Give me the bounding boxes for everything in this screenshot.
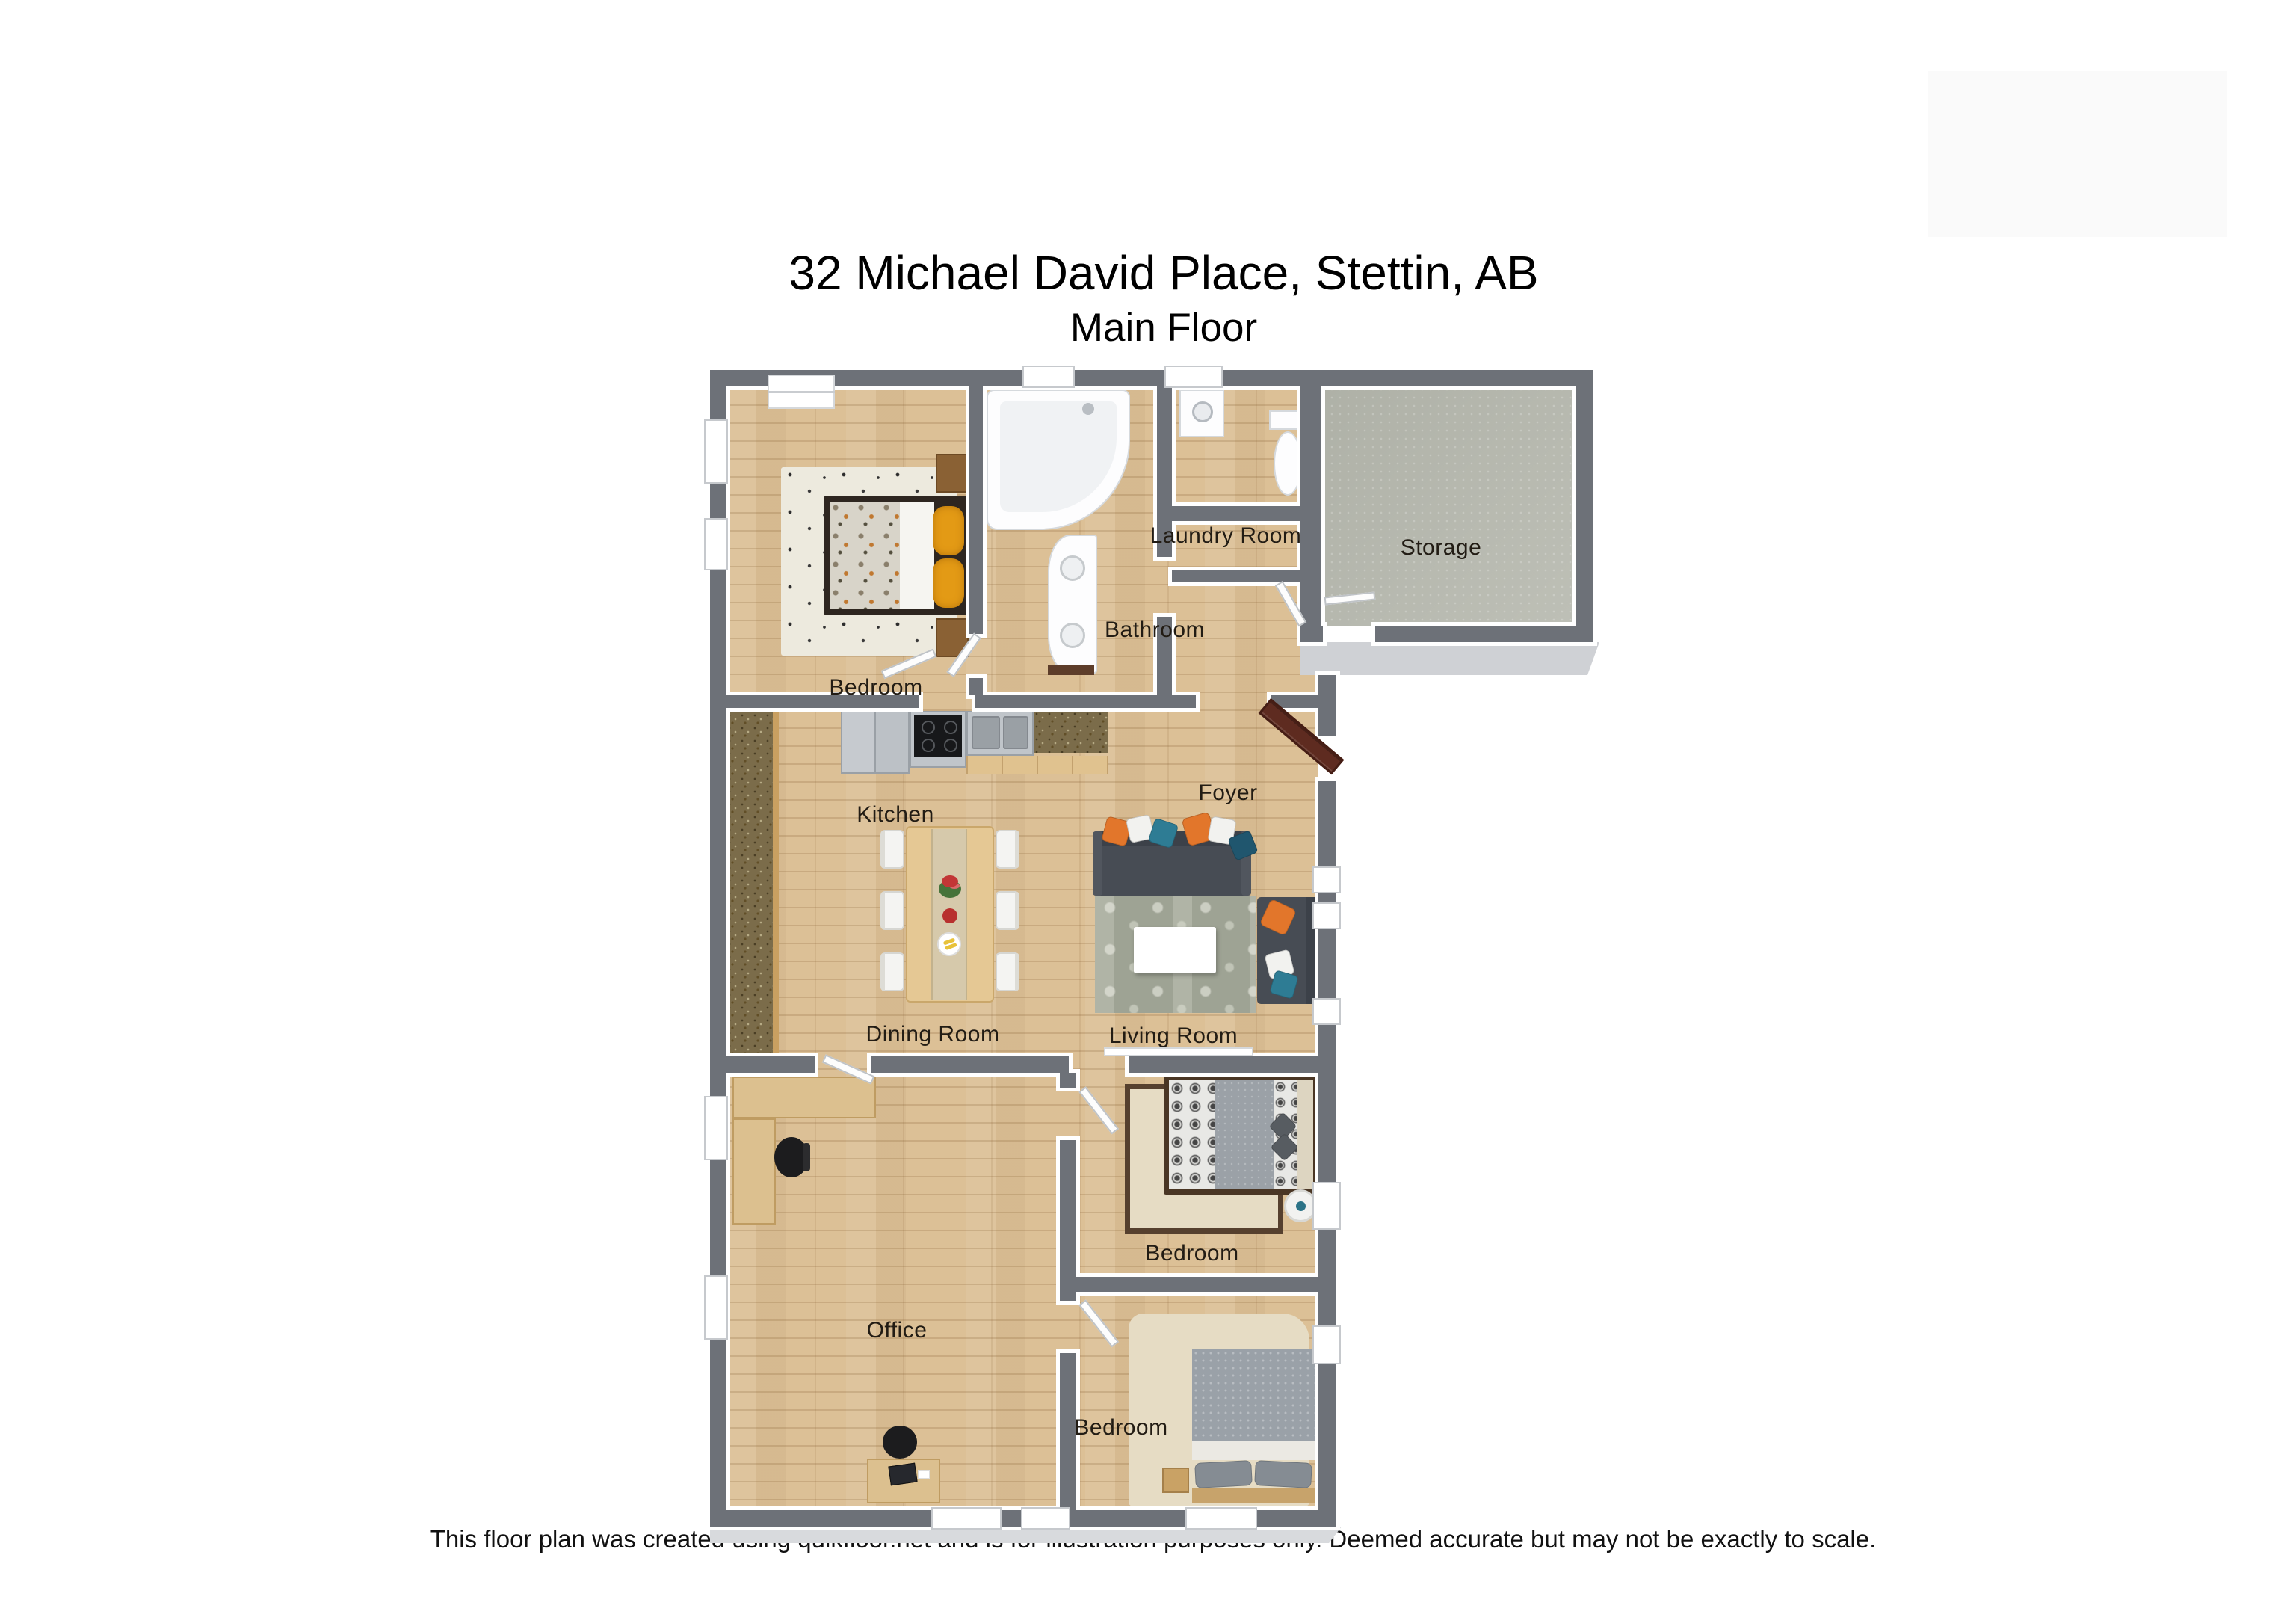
burner bbox=[944, 721, 957, 734]
refrigerator bbox=[841, 708, 910, 774]
room-label-bedroom-top: Bedroom bbox=[829, 675, 922, 700]
red-bowl bbox=[942, 908, 957, 923]
window bbox=[1312, 866, 1341, 893]
room-label-bedroom-bottom: Bedroom bbox=[1074, 1415, 1167, 1441]
dining-chair bbox=[996, 830, 1019, 869]
wall-segment bbox=[969, 678, 983, 695]
kitchen-side-counter bbox=[726, 712, 779, 1056]
desk-chair bbox=[883, 1426, 917, 1459]
sink-basin bbox=[1003, 716, 1028, 749]
storage-floor bbox=[1321, 386, 1576, 626]
burner bbox=[944, 739, 957, 752]
page-subtitle: Main Floor bbox=[1070, 305, 1257, 351]
entry-step-line bbox=[768, 391, 835, 393]
wall-segment bbox=[1060, 1140, 1076, 1301]
wall-segment bbox=[1318, 675, 1336, 736]
bed-pillow-gray bbox=[1254, 1460, 1312, 1488]
watermark bbox=[1928, 71, 2227, 237]
wall-segment bbox=[1076, 1277, 1318, 1292]
bed-pillow-gray bbox=[1194, 1460, 1253, 1488]
floorplan-page: 32 Michael David Place, Stettin, AB Main… bbox=[0, 0, 2296, 1623]
kitchen-counter bbox=[1034, 711, 1108, 753]
wall-segment bbox=[1129, 1056, 1318, 1073]
sink bbox=[1060, 623, 1085, 648]
cabinet-fronts bbox=[966, 756, 1108, 774]
dining-chair bbox=[880, 952, 904, 991]
office-chair-back bbox=[803, 1143, 810, 1171]
window bbox=[1312, 902, 1341, 929]
bed-headboard-wood bbox=[1192, 1488, 1315, 1503]
window bbox=[704, 1275, 728, 1340]
page-title: 32 Michael David Place, Stettin, AB bbox=[789, 245, 1538, 301]
room-label-foyer: Foyer bbox=[1198, 780, 1257, 806]
storage-outer-face bbox=[1300, 642, 1599, 675]
papers bbox=[918, 1470, 930, 1479]
wall-segment bbox=[710, 370, 1593, 386]
window bbox=[1185, 1507, 1257, 1530]
bed-pillow-gold bbox=[933, 558, 964, 608]
bed-pillows-cream bbox=[1297, 1080, 1313, 1189]
window bbox=[1312, 1182, 1341, 1230]
window bbox=[1312, 998, 1341, 1025]
room-label-kitchen: Kitchen bbox=[857, 802, 934, 828]
window bbox=[704, 518, 728, 570]
dining-chair bbox=[996, 891, 1019, 930]
bed-sheet bbox=[900, 502, 934, 609]
wall-segment bbox=[969, 384, 983, 634]
room-label-living: Living Room bbox=[1109, 1023, 1238, 1049]
wall-segment bbox=[1172, 506, 1300, 521]
bed-sheet-band bbox=[1192, 1441, 1315, 1460]
vanity-base bbox=[1048, 665, 1094, 675]
room-label-bathroom: Bathroom bbox=[1105, 618, 1205, 643]
nightstand bbox=[936, 454, 969, 493]
sink bbox=[1060, 555, 1085, 581]
wall-segment bbox=[1576, 370, 1593, 642]
window bbox=[704, 419, 728, 484]
room-label-storage: Storage bbox=[1401, 535, 1482, 561]
room-label-bedroom-middle: Bedroom bbox=[1145, 1241, 1238, 1266]
wall-segment bbox=[975, 695, 1196, 708]
bed-duvet-gray bbox=[1192, 1349, 1315, 1441]
window bbox=[1312, 1325, 1341, 1364]
nightstand bbox=[1162, 1468, 1189, 1493]
wall-segment bbox=[1060, 1073, 1076, 1088]
window bbox=[704, 1096, 728, 1160]
bathtub-faucet bbox=[1082, 403, 1094, 415]
window bbox=[931, 1507, 1002, 1530]
window bbox=[1164, 366, 1223, 388]
bed-duvet-patterned bbox=[830, 502, 900, 609]
room-label-laundry: Laundry Room bbox=[1150, 523, 1302, 549]
sofa-armrest bbox=[1093, 831, 1102, 896]
floor-plan: Bedroom Bathroom Laundry Room Storage Ki… bbox=[710, 370, 1641, 1530]
wall-segment bbox=[726, 1056, 815, 1073]
plate bbox=[937, 932, 961, 956]
office-desk-return bbox=[732, 1118, 776, 1225]
bed-duvet-rose-pattern bbox=[1169, 1080, 1215, 1189]
wall-segment bbox=[1375, 626, 1592, 642]
bed-duvet-gray-band bbox=[1215, 1080, 1274, 1189]
dining-chair bbox=[996, 952, 1019, 991]
coffee-table bbox=[1134, 927, 1216, 973]
door-threshold bbox=[1021, 1507, 1070, 1530]
wall-segment bbox=[1300, 386, 1321, 626]
dining-chair bbox=[880, 891, 904, 930]
wall-segment bbox=[1300, 626, 1323, 642]
room-label-office: Office bbox=[867, 1318, 928, 1343]
flowers bbox=[942, 875, 958, 887]
sink-basin bbox=[972, 716, 1000, 749]
office-desk bbox=[732, 1077, 876, 1118]
bed-pillow-gold bbox=[933, 506, 964, 555]
window bbox=[1022, 366, 1075, 388]
laptop bbox=[888, 1463, 917, 1486]
side-table-bowl bbox=[1296, 1201, 1306, 1211]
wall-segment bbox=[871, 1056, 1069, 1073]
dining-chair bbox=[880, 830, 904, 869]
room-label-dining: Dining Room bbox=[866, 1022, 1000, 1047]
washer-door bbox=[1192, 401, 1213, 422]
burner bbox=[922, 721, 935, 734]
burner bbox=[922, 739, 935, 752]
